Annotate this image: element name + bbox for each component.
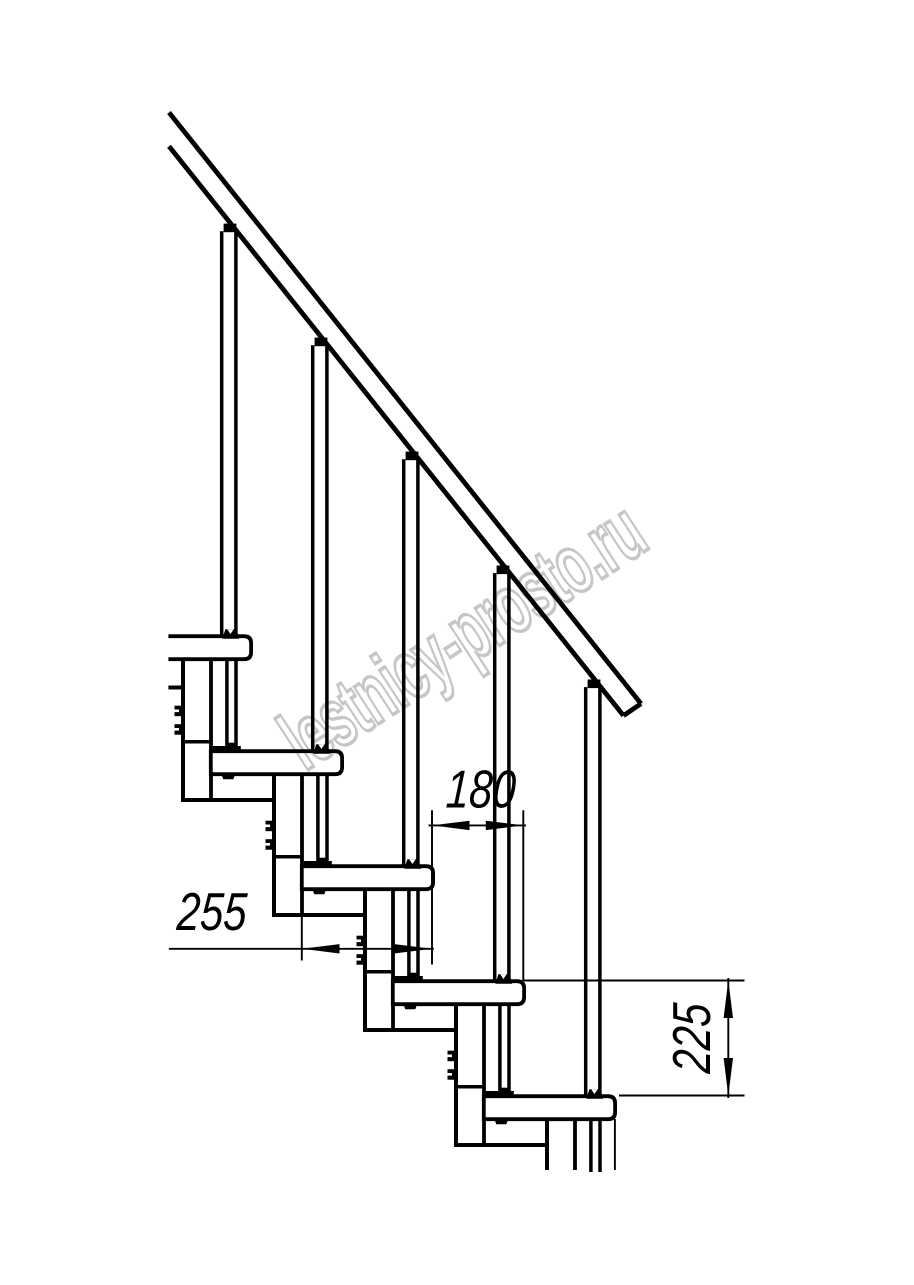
svg-text:180: 180	[445, 761, 518, 820]
svg-text:225: 225	[663, 1001, 722, 1075]
svg-text:255: 255	[175, 883, 249, 942]
